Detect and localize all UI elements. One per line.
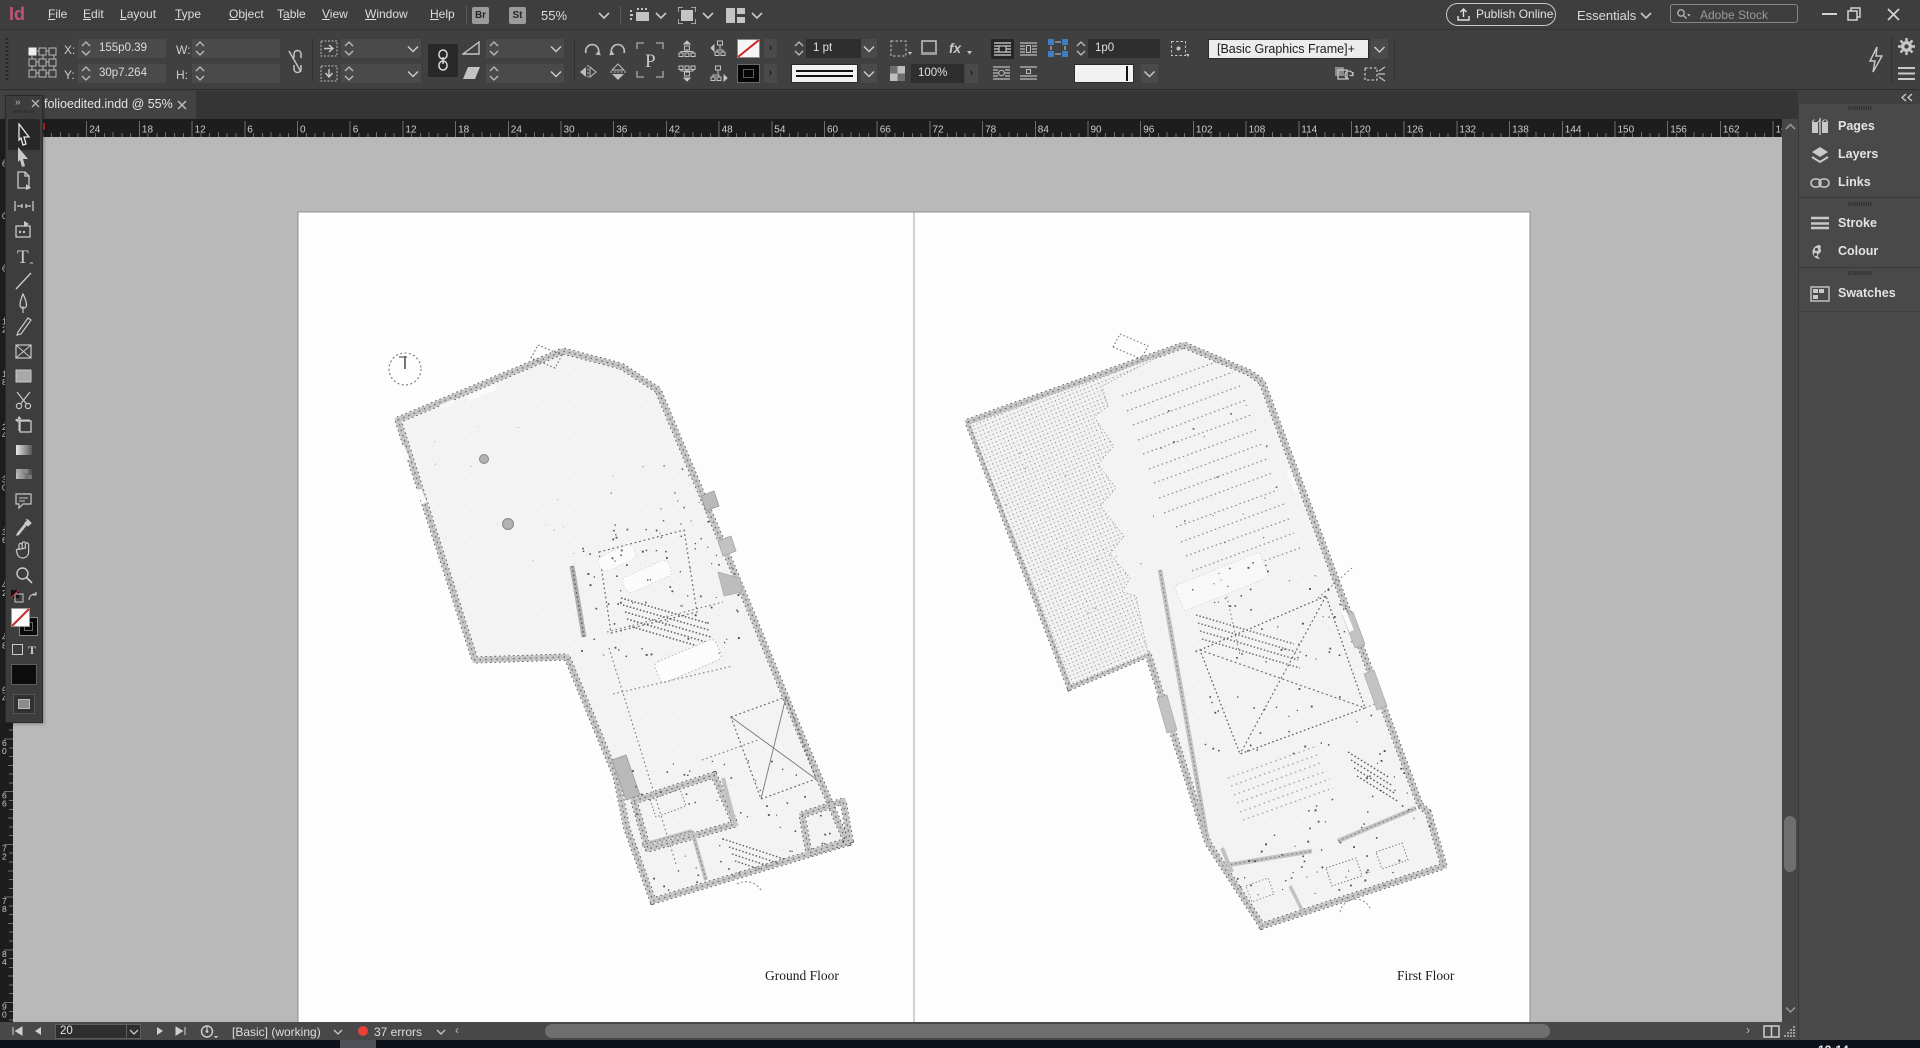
svg-text:6: 6 (353, 125, 359, 136)
svg-text:66: 66 (880, 125, 892, 136)
svg-text:8: 8 (2, 904, 7, 914)
svg-text:114: 114 (1301, 125, 1317, 136)
svg-text:18: 18 (142, 125, 154, 136)
svg-text:6: 6 (2, 799, 7, 809)
svg-text:0: 0 (300, 125, 306, 136)
svg-text:0: 0 (2, 1010, 7, 1020)
svg-text:2: 2 (2, 851, 7, 861)
svg-text:156: 156 (1670, 125, 1687, 136)
svg-text:144: 144 (1565, 125, 1582, 136)
svg-text:12: 12 (405, 125, 417, 136)
svg-text:84: 84 (1038, 125, 1050, 136)
svg-text:36: 36 (616, 125, 628, 136)
svg-text:138: 138 (1512, 125, 1529, 136)
svg-text:126: 126 (1407, 125, 1424, 136)
svg-text:162: 162 (1723, 125, 1740, 136)
svg-text:4: 4 (2, 957, 7, 967)
svg-text:24: 24 (89, 125, 101, 136)
svg-text:24: 24 (511, 125, 523, 136)
svg-text:132: 132 (1459, 125, 1476, 136)
svg-text:120: 120 (1354, 125, 1371, 136)
svg-text:96: 96 (1143, 125, 1155, 136)
svg-text:78: 78 (985, 125, 997, 136)
svg-text:T: T (17, 247, 29, 267)
svg-text:12: 12 (195, 125, 207, 136)
svg-text:6: 6 (247, 125, 253, 136)
svg-text:108: 108 (1249, 125, 1266, 136)
svg-text:90: 90 (1091, 125, 1103, 136)
svg-text:Ground Floor: Ground Floor (765, 968, 839, 983)
svg-text:42: 42 (669, 125, 681, 136)
svg-text:102: 102 (1196, 125, 1213, 136)
svg-text:54: 54 (774, 125, 786, 136)
svg-text:First Floor: First Floor (1397, 968, 1455, 983)
svg-text:18: 18 (458, 125, 470, 136)
svg-text:60: 60 (827, 125, 839, 136)
svg-text:48: 48 (722, 125, 734, 136)
svg-text:150: 150 (1618, 125, 1635, 136)
svg-text:P: P (645, 51, 656, 72)
svg-text:0: 0 (2, 746, 7, 756)
svg-text:30: 30 (564, 125, 576, 136)
svg-text:72: 72 (932, 125, 944, 136)
